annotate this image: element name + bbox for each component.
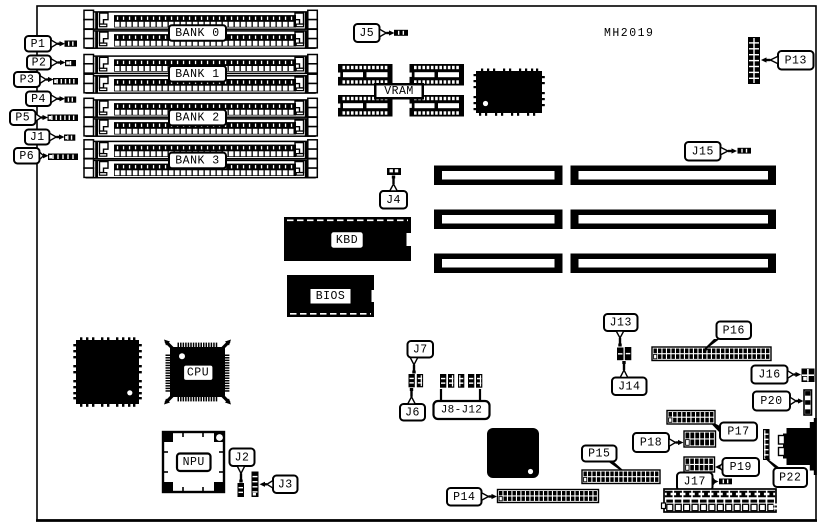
svg-text:J2: J2 xyxy=(235,451,250,464)
svg-text:P14: P14 xyxy=(453,491,475,504)
svg-text:VRAM: VRAM xyxy=(384,85,414,98)
svg-text:J14: J14 xyxy=(618,380,640,393)
svg-text:P1: P1 xyxy=(31,38,46,51)
svg-text:KBD: KBD xyxy=(336,234,358,247)
svg-text:P5: P5 xyxy=(15,112,30,125)
svg-text:BIOS: BIOS xyxy=(316,290,346,303)
svg-text:J4: J4 xyxy=(386,194,401,207)
svg-text:P22: P22 xyxy=(779,472,801,485)
svg-text:NPU: NPU xyxy=(183,456,205,469)
svg-text:J15: J15 xyxy=(692,145,714,158)
svg-text:J3: J3 xyxy=(278,478,293,491)
svg-text:J7: J7 xyxy=(413,343,428,356)
svg-text:P13: P13 xyxy=(785,54,807,67)
svg-text:P16: P16 xyxy=(723,324,745,337)
svg-text:P15: P15 xyxy=(588,448,610,461)
svg-text:P20: P20 xyxy=(760,395,782,408)
svg-text:P2: P2 xyxy=(32,57,47,70)
svg-text:J6: J6 xyxy=(405,406,420,419)
svg-text:BANK 3: BANK 3 xyxy=(175,154,219,167)
svg-text:MH2019: MH2019 xyxy=(604,27,654,40)
svg-text:J17: J17 xyxy=(684,476,706,489)
svg-text:P3: P3 xyxy=(20,74,35,87)
svg-text:BANK 2: BANK 2 xyxy=(175,112,219,125)
svg-text:J16: J16 xyxy=(758,369,780,382)
svg-text:P18: P18 xyxy=(640,437,662,450)
svg-text:J8-J12: J8-J12 xyxy=(441,405,482,417)
svg-text:CPU: CPU xyxy=(187,367,209,380)
svg-text:P17: P17 xyxy=(727,426,749,439)
svg-text:BANK 0: BANK 0 xyxy=(175,27,219,40)
svg-text:P19: P19 xyxy=(730,461,752,474)
svg-text:J1: J1 xyxy=(30,131,45,144)
svg-text:J5: J5 xyxy=(359,27,374,40)
svg-text:BANK 1: BANK 1 xyxy=(175,68,219,81)
svg-text:J13: J13 xyxy=(610,317,632,330)
svg-text:P6: P6 xyxy=(19,150,34,163)
svg-text:P4: P4 xyxy=(31,93,46,106)
